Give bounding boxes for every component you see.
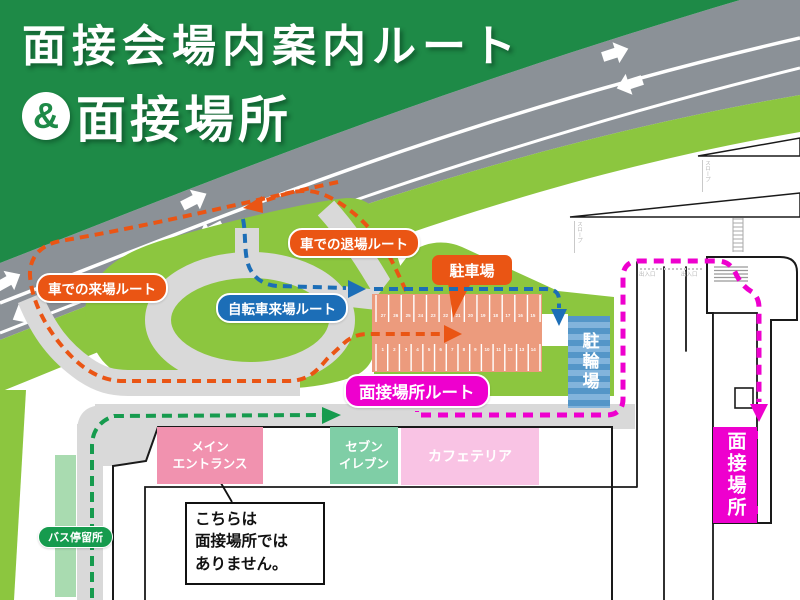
bus-stop-label: バス停留所 (38, 526, 113, 548)
stall-number: 1 (377, 347, 389, 352)
interview-venue-map: 面接会場内案内ルート & 面接場所 車での来場ルート 車での退場ルート 自転車来… (0, 0, 800, 600)
stall-number: 6 (435, 347, 447, 352)
stall-number: 14 (528, 347, 540, 352)
title-line2: & 面接場所 (22, 80, 522, 152)
stall-number: 21 (452, 313, 464, 318)
ampersand-badge: & (22, 92, 70, 140)
stall-number: 24 (414, 313, 426, 318)
seven-eleven-block: セブン イレブン (330, 427, 398, 484)
car-exit-route-label: 車での退場ルート (288, 228, 420, 258)
callout-line2: 面接場所では (195, 531, 315, 553)
parking-label: 駐車場 (432, 255, 512, 285)
stall-number: 16 (514, 313, 526, 318)
left-green-strip (0, 390, 26, 600)
parking-exit-gap (542, 314, 568, 346)
stall-number: 25 (402, 313, 414, 318)
stall-number: 22 (439, 313, 451, 318)
title-line2-text: 面接場所 (76, 80, 292, 152)
cafeteria-label: カフェテリア (428, 447, 512, 465)
seven-eleven-line1: セブン (345, 439, 383, 455)
stall-number: 10 (481, 347, 493, 352)
outdoor-stairs (733, 218, 743, 252)
callout-line1: こちらは (195, 509, 315, 531)
stall-number: 5 (423, 347, 435, 352)
stall-number: 3 (400, 347, 412, 352)
stall-number: 7 (446, 347, 458, 352)
main-entrance-line1: メイン (191, 439, 229, 455)
slope-annotation-upper: スロープ (702, 160, 710, 192)
bicycle-parking-block: 駐輪場 (568, 316, 610, 408)
seven-eleven-line2: イレブン (339, 456, 389, 472)
stall-number: 13 (516, 347, 528, 352)
door-annotation-right: 出入口 (681, 272, 698, 278)
interview-place-label: 面接場所 (726, 431, 745, 519)
elevator-square (735, 388, 753, 408)
bicycle-parking-label: 駐輪場 (581, 332, 598, 392)
stall-number: 2 (389, 347, 401, 352)
stall-number: 15 (527, 313, 539, 318)
stall-number: 9 (470, 347, 482, 352)
door-annotation-left: 出入口 (639, 272, 656, 278)
not-interview-place-callout: こちらは 面接場所では ありません。 (185, 502, 325, 585)
stall-number: 11 (493, 347, 505, 352)
stall-number: 20 (464, 313, 476, 318)
stall-number: 19 (477, 313, 489, 318)
stall-number: 27 (377, 313, 389, 318)
stall-number: 18 (489, 313, 501, 318)
bicycle-route-label: 自転車来場ルート (216, 293, 348, 323)
page-title: 面接会場内案内ルート & 面接場所 (22, 10, 522, 152)
main-entrance-block: メイン エントランス (157, 427, 263, 484)
car-arrival-route-label: 車での来場ルート (36, 273, 168, 303)
stall-number: 23 (427, 313, 439, 318)
stall-number: 12 (504, 347, 516, 352)
cafeteria-block: カフェテリア (401, 428, 539, 485)
interview-route-label: 面接場所ルート (344, 374, 490, 408)
parking-stall-numbers-bottom: 1234567891011121314 (377, 345, 539, 353)
title-line1: 面接会場内案内ルート (22, 10, 522, 74)
callout-line3: ありません。 (195, 554, 315, 576)
stall-number: 17 (502, 313, 514, 318)
slope-annotation-lower: スロープ (574, 221, 582, 253)
stall-number: 4 (412, 347, 424, 352)
stall-number: 26 (389, 313, 401, 318)
main-entrance-line2: エントランス (173, 456, 248, 472)
ramp-lower (570, 193, 800, 217)
parking-stall-numbers-top: 27262524232221201918171615 (377, 311, 539, 319)
interview-place-block: 面接場所 (713, 427, 757, 523)
stall-number: 8 (458, 347, 470, 352)
